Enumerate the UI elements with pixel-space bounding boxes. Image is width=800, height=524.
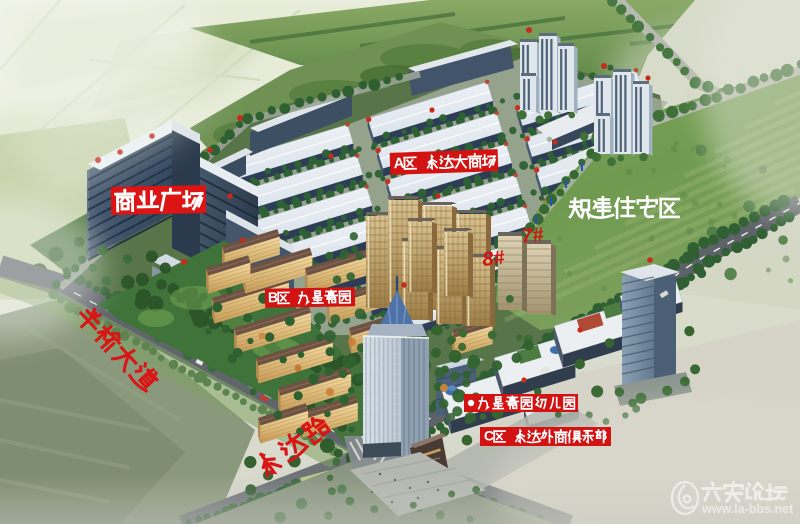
svg-text:7#: 7# [520,224,545,248]
svg-text:C: C [484,429,494,445]
svg-text:A: A [393,155,405,172]
svg-text:8#: 8# [481,247,506,271]
svg-text:B: B [268,290,279,306]
svg-text:www.la-bbs.net: www.la-bbs.net [701,502,794,516]
